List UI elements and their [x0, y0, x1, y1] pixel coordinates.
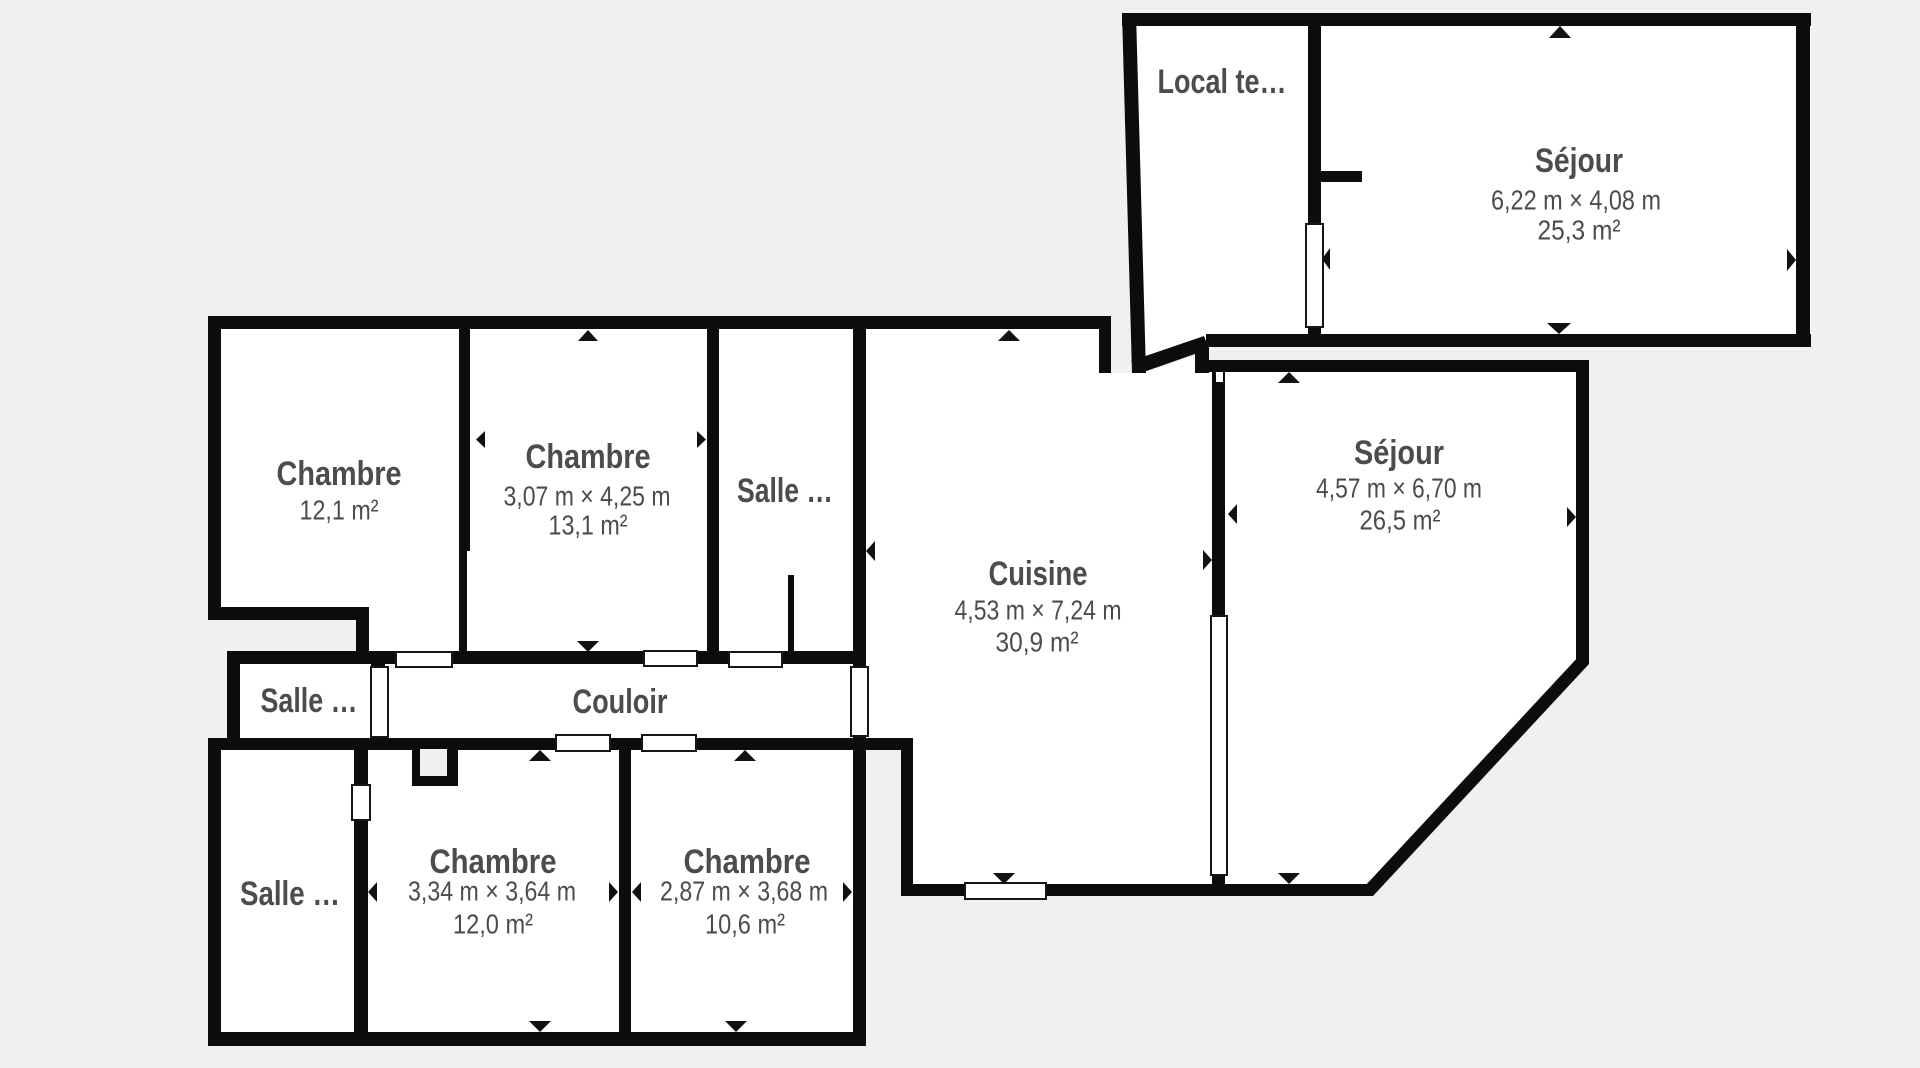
svg-text:Salle …: Salle … — [261, 682, 358, 720]
svg-text:12,1 m²: 12,1 m² — [300, 495, 379, 526]
svg-text:3,07 m × 4,25 m: 3,07 m × 4,25 m — [504, 481, 671, 512]
svg-text:Salle …: Salle … — [737, 472, 833, 510]
svg-text:25,3 m²: 25,3 m² — [1538, 215, 1621, 246]
svg-text:30,9 m²: 30,9 m² — [996, 627, 1079, 658]
svg-text:6,22 m × 4,08 m: 6,22 m × 4,08 m — [1491, 185, 1661, 216]
svg-text:Chambre: Chambre — [526, 438, 651, 476]
svg-text:13,1 m²: 13,1 m² — [549, 510, 628, 541]
svg-text:Cuisine: Cuisine — [989, 555, 1088, 593]
svg-text:3,34 m × 3,64 m: 3,34 m × 3,64 m — [408, 876, 576, 907]
svg-text:12,0 m²: 12,0 m² — [453, 909, 533, 940]
svg-text:Chambre: Chambre — [277, 455, 402, 493]
svg-text:4,53 m × 7,24 m: 4,53 m × 7,24 m — [955, 595, 1122, 626]
svg-text:Couloir: Couloir — [573, 683, 668, 721]
svg-text:Salle …: Salle … — [240, 875, 340, 913]
svg-text:10,6 m²: 10,6 m² — [705, 909, 785, 940]
svg-text:4,57 m × 6,70 m: 4,57 m × 6,70 m — [1316, 473, 1482, 504]
svg-text:2,87 m × 3,68 m: 2,87 m × 3,68 m — [660, 876, 828, 907]
svg-text:26,5 m²: 26,5 m² — [1360, 505, 1441, 536]
svg-text:Séjour: Séjour — [1535, 142, 1623, 180]
svg-text:Séjour: Séjour — [1354, 434, 1444, 472]
svg-text:Local te…: Local te… — [1158, 63, 1287, 101]
